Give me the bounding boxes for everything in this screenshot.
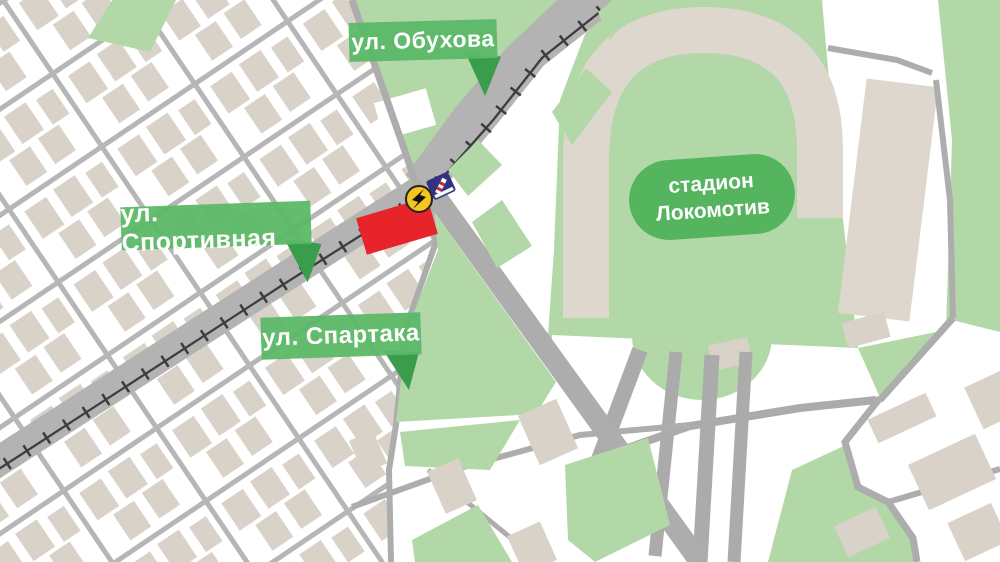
stadium-label: стадион Локомотив [626, 151, 797, 242]
street-label-sportivnaya: ул. Спортивная [120, 201, 311, 251]
map-canvas: ул. Обухова ул. Спортивная ул. Спартака … [0, 0, 1000, 562]
residential-grid [0, 0, 436, 562]
street-label-spartaka-text: ул. Спартака [262, 319, 420, 352]
street-label-obukhova: ул. Обухова [349, 19, 498, 62]
street-label-sportivnaya-text: ул. Спортивная [120, 193, 312, 258]
schematic-map [0, 0, 1000, 562]
street-label-obukhova-text: ул. Обухова [351, 25, 495, 56]
lightning-incident-icon [406, 186, 432, 212]
street-label-spartaka: ул. Спартака [260, 312, 421, 360]
